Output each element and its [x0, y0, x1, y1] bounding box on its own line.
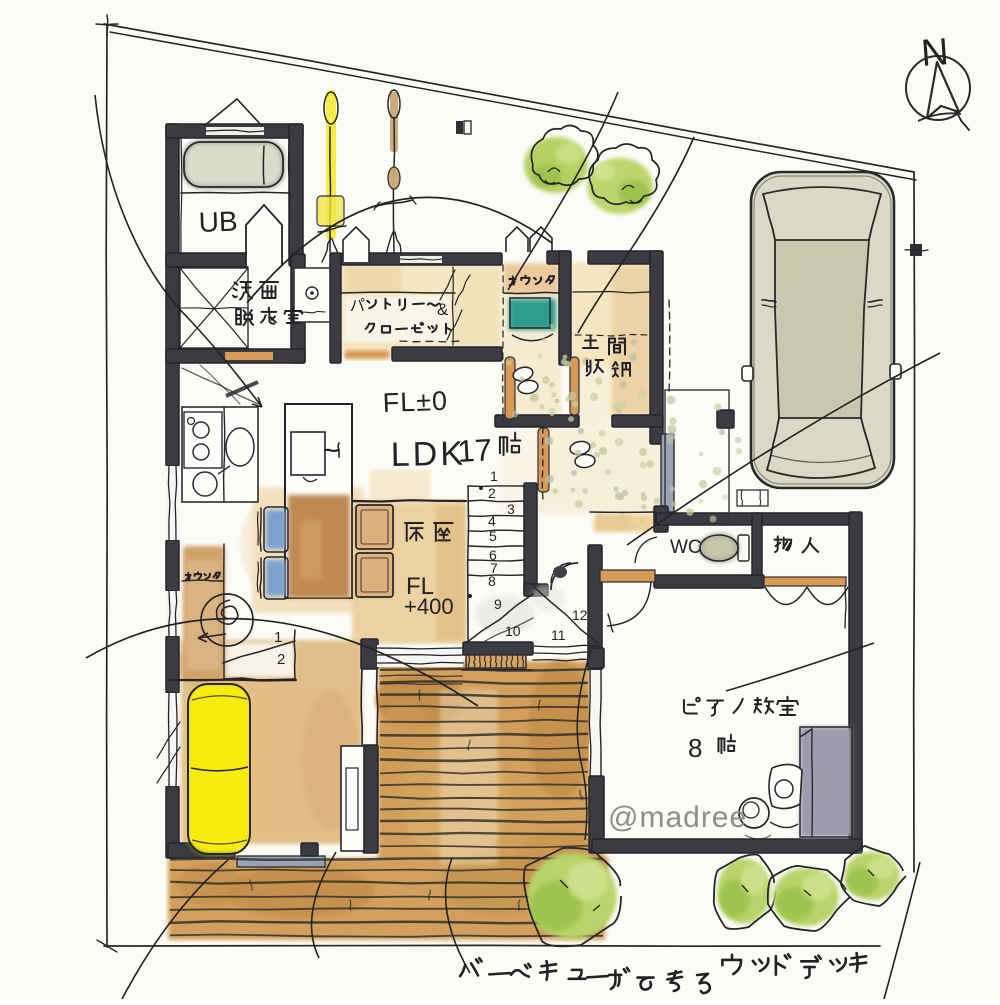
svg-text:10: 10 [505, 623, 521, 639]
svg-text:8: 8 [488, 573, 496, 589]
svg-text:1: 1 [490, 468, 498, 484]
svg-text:1: 1 [274, 629, 282, 646]
svg-text:&: & [437, 300, 449, 319]
svg-text:FL±0: FL±0 [382, 386, 448, 418]
svg-text:8: 8 [688, 733, 702, 763]
svg-text:17: 17 [457, 432, 493, 469]
svg-text:11: 11 [551, 627, 566, 643]
svg-text:LDK: LDK [390, 435, 466, 474]
svg-text:パ: パ [350, 297, 365, 314]
svg-text:5: 5 [489, 528, 497, 544]
svg-text:2: 2 [277, 651, 285, 668]
svg-text:UB: UB [198, 206, 238, 238]
svg-text:9: 9 [494, 596, 502, 612]
svg-text:12: 12 [572, 607, 588, 623]
svg-text:3: 3 [507, 501, 515, 517]
svg-text:+400: +400 [404, 594, 454, 619]
svg-text:4: 4 [488, 513, 496, 529]
svg-text:WC: WC [670, 537, 702, 558]
svg-text:2: 2 [488, 485, 496, 501]
svg-text:@madree: @madree [608, 801, 747, 834]
